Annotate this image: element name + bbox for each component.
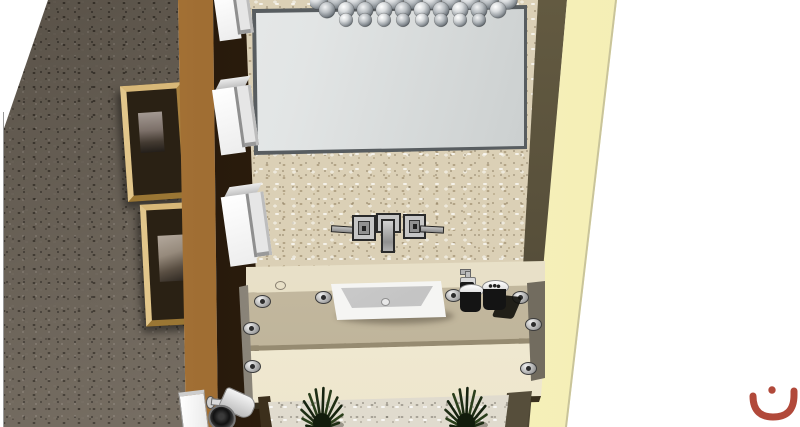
picture-frame-1 <box>120 82 190 202</box>
standoff-bolt <box>244 360 261 373</box>
faucet-left-handle-inner <box>358 221 370 235</box>
jar-1-body <box>460 292 481 312</box>
bubble-chandelier <box>310 0 520 31</box>
faucet-spout <box>381 219 395 253</box>
watermark-noon-logo <box>747 385 799 423</box>
photo-1 <box>138 111 165 153</box>
plants <box>288 383 513 427</box>
jar-2 <box>482 280 507 311</box>
faucet-right-handle-inner <box>409 220 420 233</box>
render-canvas <box>0 0 800 427</box>
faucet-left-handle-dot <box>362 226 366 231</box>
standoff-bolt <box>525 318 542 331</box>
standoff-bolt <box>243 322 260 335</box>
jar-1 <box>459 284 482 313</box>
logo-dot <box>768 386 775 393</box>
faucet-left-handle <box>352 215 376 241</box>
counter-hole <box>275 281 286 290</box>
sink-drain <box>381 298 390 306</box>
sconce-1 <box>212 0 256 44</box>
jar-2-body <box>483 289 506 310</box>
standoff-bolt <box>315 291 332 304</box>
standoff-bolt <box>520 362 537 375</box>
logo-bowl <box>753 391 794 417</box>
standoff-bolt <box>254 295 271 308</box>
panel-sconce <box>178 390 209 427</box>
faucet-right-handle-dot <box>413 224 417 229</box>
faucet-right-lever <box>420 225 444 233</box>
toiletries-group <box>458 266 523 321</box>
wall-faucet <box>328 210 448 252</box>
outer-wall-edge <box>0 112 4 427</box>
